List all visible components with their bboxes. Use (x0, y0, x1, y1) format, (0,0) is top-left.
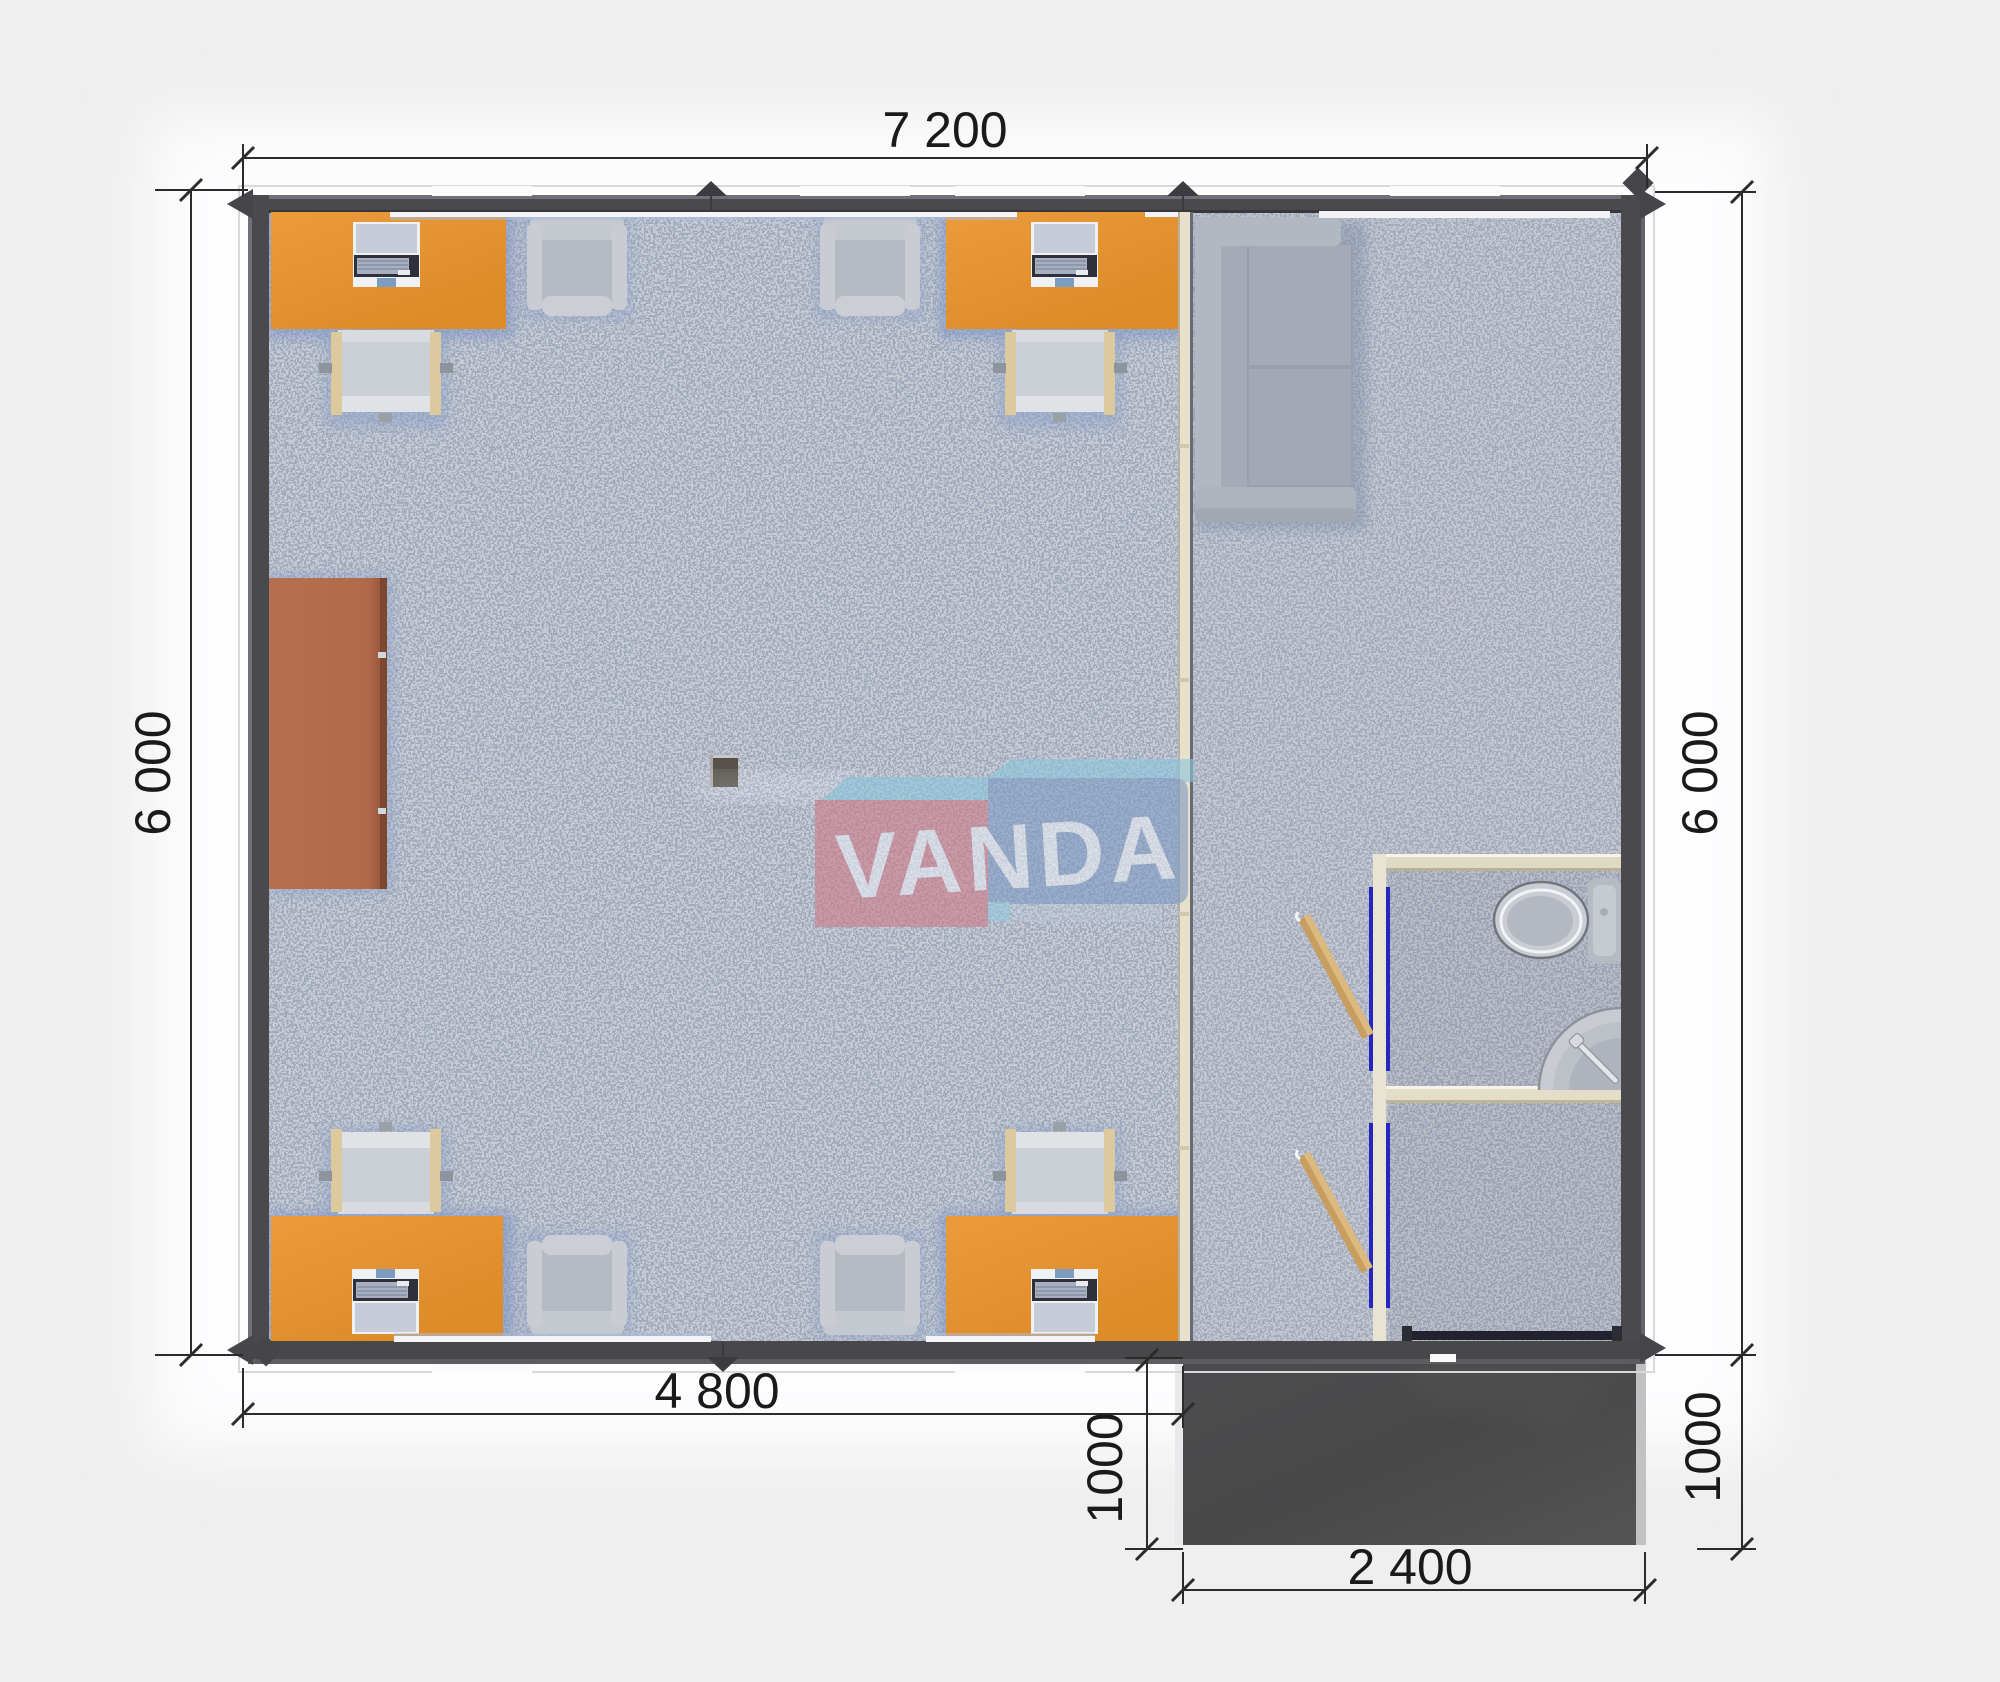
svg-text:4 800: 4 800 (654, 1363, 779, 1419)
svg-text:VANDA: VANDA (833, 796, 1184, 919)
svg-text:1000: 1000 (1077, 1412, 1133, 1523)
svg-text:2 400: 2 400 (1347, 1539, 1472, 1595)
svg-text:6 000: 6 000 (125, 710, 181, 835)
svg-text:1000: 1000 (1675, 1391, 1731, 1502)
svg-text:6 000: 6 000 (1672, 710, 1728, 835)
svg-text:7 200: 7 200 (882, 102, 1007, 158)
